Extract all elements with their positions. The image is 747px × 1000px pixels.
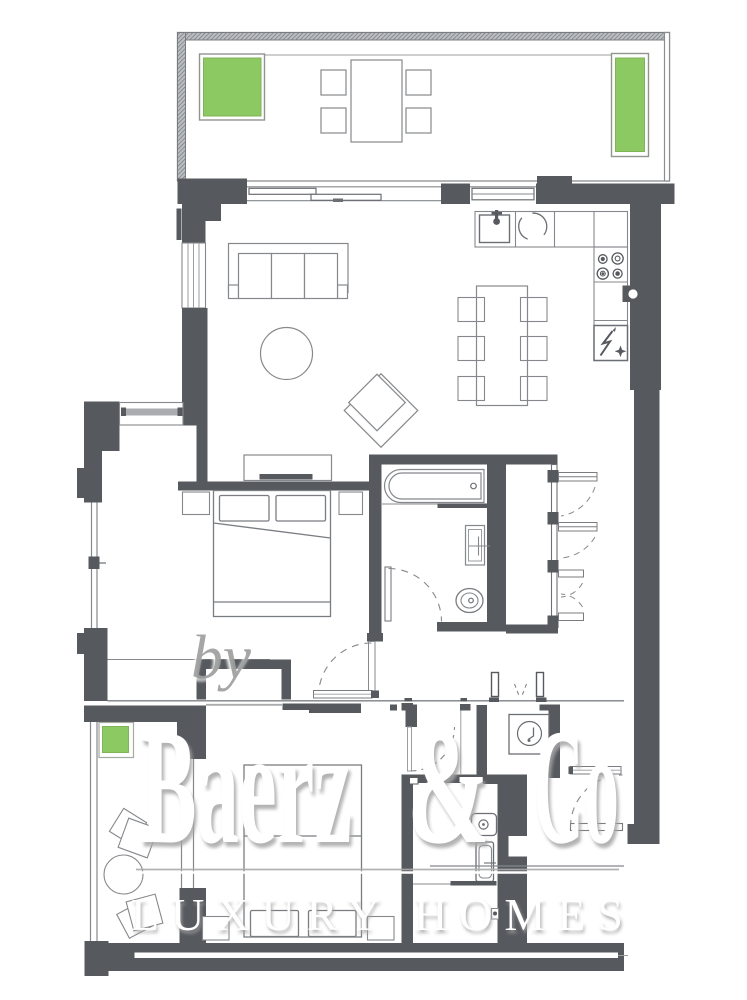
svg-text:&: &	[407, 695, 490, 878]
svg-text:Baerz: Baerz	[140, 695, 352, 878]
svg-text:Co: Co	[533, 695, 619, 878]
svg-text:by: by	[191, 624, 251, 692]
